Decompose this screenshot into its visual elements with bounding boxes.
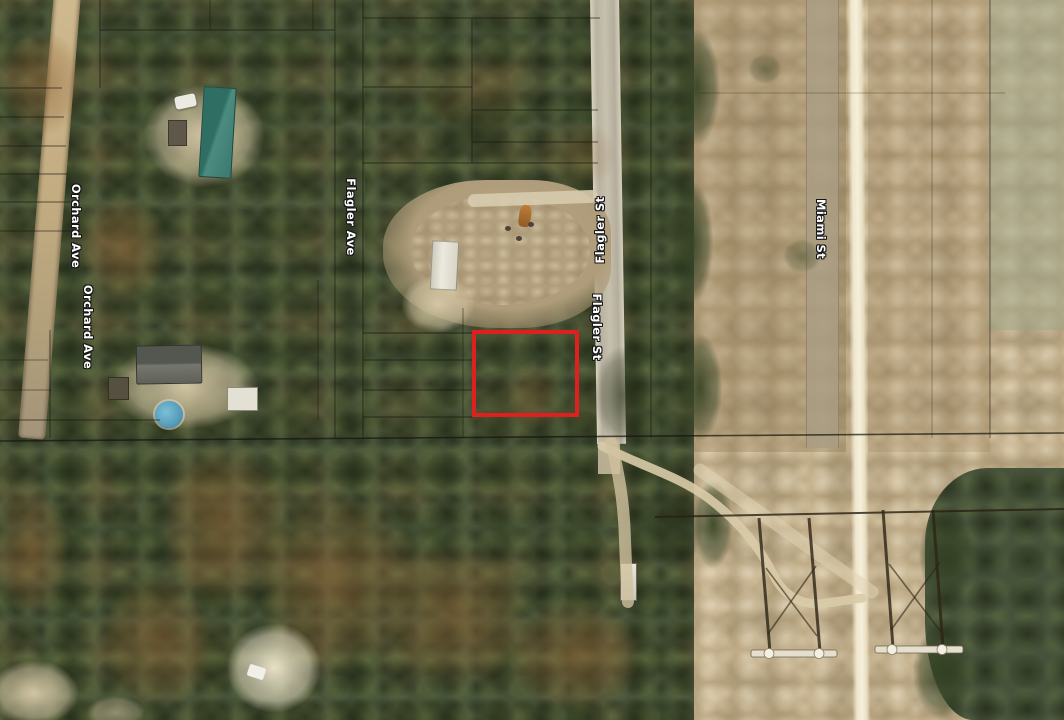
street-label-orchard-ave: Orchard Ave bbox=[81, 285, 95, 369]
street-label-miami-st: Miami St bbox=[814, 199, 828, 259]
dirt-trails bbox=[602, 442, 872, 604]
street-label-flagler-st: Flagler St bbox=[593, 197, 607, 264]
street-label-flagler-ave: Flagler Ave bbox=[344, 178, 358, 255]
street-label-orchard-ave: Orchard Ave bbox=[69, 184, 83, 268]
aerial-map: Orchard Ave Orchard Ave Flagler Ave Flag… bbox=[0, 0, 1064, 720]
street-label-flagler-st: Flagler St bbox=[590, 294, 604, 361]
highlighted-parcel-outline bbox=[472, 330, 579, 417]
